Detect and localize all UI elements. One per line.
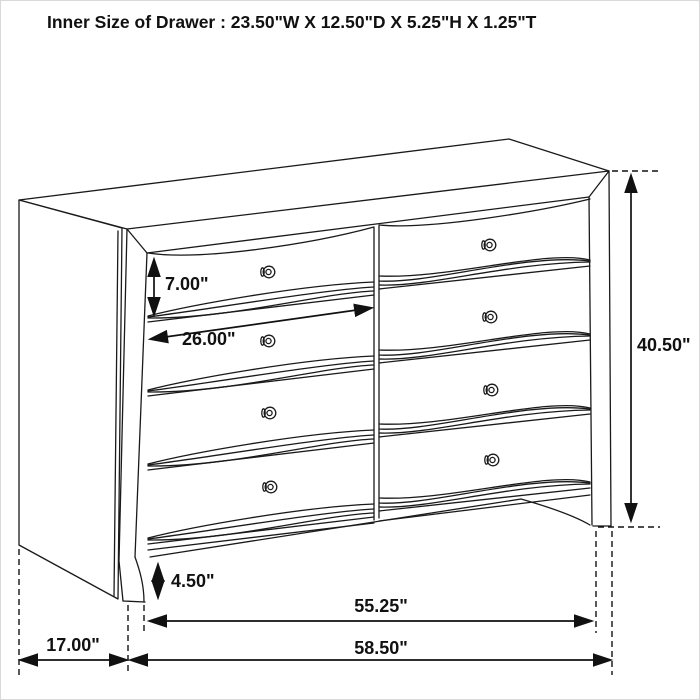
- knob: [261, 266, 275, 278]
- right-stile-and-foot: [521, 171, 611, 526]
- drawer-height-label: 7.00": [165, 274, 209, 294]
- diagram-svg: Inner Size of Drawer : 23.50"W X 12.50"D…: [1, 1, 700, 700]
- left-drawer-mouldings: [148, 282, 374, 544]
- overall-height-label: 40.50": [637, 335, 691, 355]
- left-stile-and-foot: [119, 229, 147, 602]
- leg-width-label: 55.25": [354, 596, 408, 616]
- right-drawer-mouldings: [379, 258, 590, 511]
- drawer-width-label: 26.00": [182, 329, 236, 349]
- knob: [263, 481, 277, 493]
- dresser-dimension-diagram: Inner Size of Drawer : 23.50"W X 12.50"D…: [0, 0, 700, 700]
- knob: [261, 335, 275, 347]
- knob: [262, 407, 276, 419]
- drawer-knobs: [261, 239, 499, 493]
- center-divider: [374, 226, 379, 520]
- knob: [483, 311, 497, 323]
- knob: [484, 384, 498, 396]
- overall-width-label: 58.50": [354, 638, 408, 658]
- dresser-drawing: [19, 139, 611, 602]
- page-title: Inner Size of Drawer : 23.50"W X 12.50"D…: [47, 12, 537, 32]
- knob: [485, 454, 499, 466]
- overall-depth-label: 17.00": [46, 635, 100, 655]
- knob: [482, 239, 496, 251]
- left-side-panel: [19, 200, 122, 599]
- base-height-label: 4.50": [171, 571, 215, 591]
